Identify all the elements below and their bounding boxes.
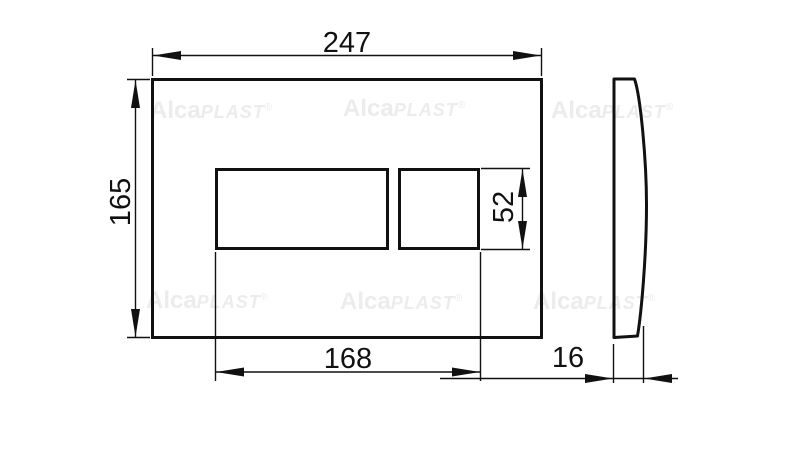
drawing-canvas: AlcaPLAST® AlcaPLAST® AlcaPLAST® AlcaPLA… bbox=[0, 0, 800, 450]
arrowhead-right bbox=[513, 51, 541, 60]
arrowhead-bottom bbox=[518, 221, 527, 249]
arrowhead-top bbox=[131, 80, 140, 108]
dim-plate-height: 165 bbox=[105, 80, 150, 338]
dim-plate-depth: 16 bbox=[440, 326, 678, 383]
front-view-plate-outline bbox=[153, 80, 542, 338]
dim-button-area-width: 168 bbox=[216, 252, 481, 381]
arrowhead-left bbox=[153, 51, 181, 60]
dim-plate-width: 247 bbox=[153, 27, 542, 76]
dim-plate-depth-label: 16 bbox=[552, 342, 584, 374]
arrowhead-right bbox=[452, 368, 480, 377]
arrowhead-bottom bbox=[131, 309, 140, 337]
dim-plate-width-label: 247 bbox=[323, 27, 371, 59]
arrowhead-left bbox=[216, 368, 244, 377]
dim-button-height-label: 52 bbox=[488, 191, 520, 223]
dim-button-height: 52 bbox=[481, 169, 530, 250]
small-button-outline bbox=[400, 170, 479, 249]
technical-drawing: 247 165 52 168 bbox=[0, 0, 800, 450]
arrowhead-right bbox=[644, 374, 672, 383]
dim-button-area-width-label: 168 bbox=[324, 343, 372, 375]
side-view-outline bbox=[614, 79, 647, 338]
large-button-outline bbox=[217, 170, 388, 249]
arrowhead-left bbox=[585, 374, 613, 383]
dim-plate-height-label: 165 bbox=[105, 178, 137, 226]
